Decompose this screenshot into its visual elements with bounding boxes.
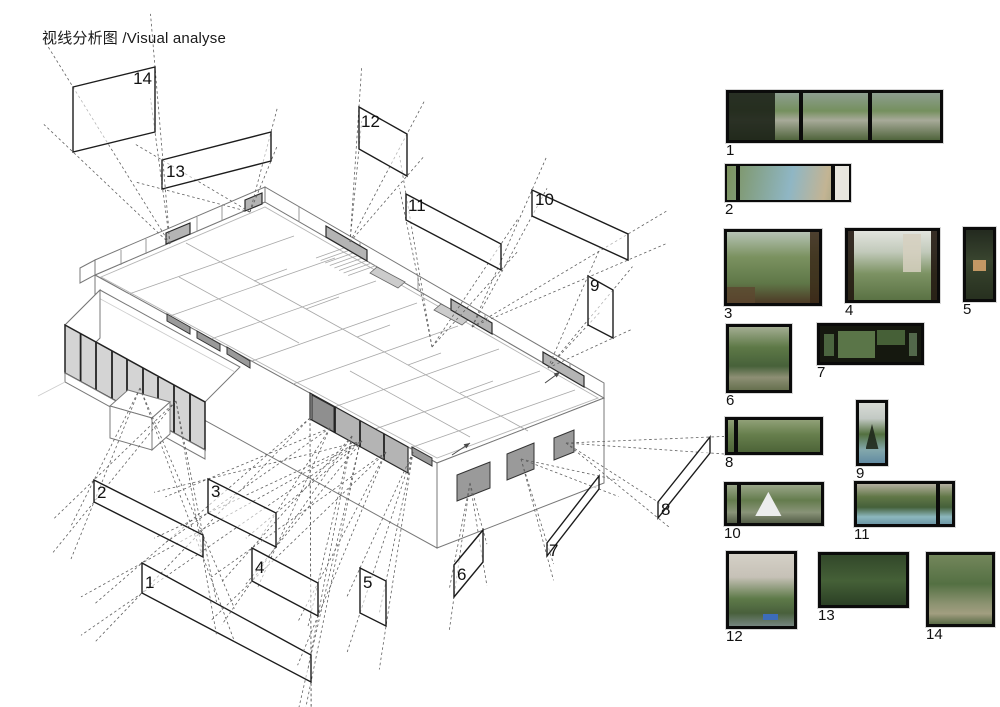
view-plane-10-number: 10 — [535, 190, 554, 209]
photo-2-label: 2 — [725, 202, 851, 219]
photo-5-image — [963, 227, 996, 302]
photo-11-label: 11 — [854, 527, 955, 544]
view-plane-13: 13 — [136, 108, 278, 212]
photo-10: 10 — [724, 482, 824, 543]
photo-3: 3 — [724, 229, 822, 323]
photo-7: 7 — [817, 323, 924, 382]
photo-11-image — [854, 481, 955, 527]
view-plane-9: 9 — [548, 248, 633, 368]
photo-11: 11 — [854, 481, 955, 544]
photo-7-detail — [838, 331, 874, 358]
photo-2-detail — [834, 166, 849, 200]
view-plane-2-frame — [94, 480, 203, 557]
photo-3-detail — [810, 232, 819, 303]
photo-14: 14 — [926, 552, 995, 644]
photo-12-image — [726, 551, 797, 629]
photo-10-label: 10 — [724, 526, 824, 543]
visual-analysis-diagram: 视线分析图 /Visual analyse — [0, 0, 1000, 707]
photo-7-detail — [909, 333, 917, 356]
photo-3-detail — [727, 287, 755, 303]
view-plane-10: 10 — [472, 156, 667, 327]
sight-line — [350, 67, 362, 243]
photo-6-image — [726, 324, 792, 393]
view-plane-8-number: 8 — [661, 500, 670, 519]
photo-8-image — [725, 417, 823, 455]
photo-7-detail — [877, 330, 905, 345]
photo-13-image — [818, 552, 909, 608]
photo-7-detail — [824, 334, 834, 356]
photo-3-label: 3 — [724, 306, 822, 323]
photo-5-label: 5 — [963, 302, 996, 319]
view-plane-1-number: 1 — [145, 573, 154, 592]
photo-1-label: 1 — [726, 143, 943, 160]
photo-9-image — [856, 400, 888, 466]
photo-1-image — [726, 90, 943, 143]
photo-8-mullion — [734, 420, 738, 452]
view-plane-12-number: 12 — [361, 112, 380, 131]
view-plane-13-number: 13 — [166, 162, 185, 181]
photo-6: 6 — [726, 324, 792, 410]
photo-9-detail — [866, 424, 879, 449]
photo-5-detail — [973, 260, 986, 271]
photo-1-detail — [729, 93, 775, 140]
sight-line — [136, 182, 250, 212]
photo-4-detail — [903, 234, 921, 272]
garden-cabin — [110, 390, 170, 450]
photo-8-label: 8 — [725, 455, 823, 472]
photo-2-image — [725, 164, 851, 202]
photo-14-label: 14 — [926, 627, 995, 644]
photo-7-label: 7 — [817, 365, 924, 382]
photo-13-label: 13 — [818, 608, 909, 625]
photo-1-mullion — [799, 93, 803, 140]
view-plane-14: 14 — [44, 14, 170, 244]
photo-8: 8 — [725, 417, 823, 472]
photo-9: 9 — [856, 400, 888, 483]
photo-2: 2 — [725, 164, 851, 219]
photo-10-detail — [755, 492, 781, 516]
view-plane-7-number: 7 — [549, 541, 558, 560]
photo-4-detail — [931, 231, 937, 300]
view-plane-9-number: 9 — [590, 276, 599, 295]
photo-11-mullion — [936, 484, 940, 524]
photo-1: 1 — [726, 90, 943, 160]
photo-3-image — [724, 229, 822, 306]
photo-10-image — [724, 482, 824, 526]
photo-12-detail — [763, 614, 779, 620]
view-plane-6-number: 6 — [457, 565, 466, 584]
photo-10-mullion — [737, 485, 741, 523]
photo-12: 12 — [726, 551, 797, 646]
photo-6-label: 6 — [726, 393, 792, 410]
sight-line — [71, 388, 140, 559]
view-plane-4-number: 4 — [255, 558, 264, 577]
view-plane-11-number: 11 — [408, 196, 426, 215]
view-plane-2-number: 2 — [97, 483, 106, 502]
photo-4: 4 — [845, 228, 940, 320]
photo-5: 5 — [963, 227, 996, 319]
photo-2-mullion — [736, 166, 740, 200]
photo-4-detail — [848, 231, 854, 300]
view-plane-3-number: 3 — [211, 482, 220, 501]
photo-1-mullion — [868, 93, 872, 140]
photo-7-image — [817, 323, 924, 365]
photo-4-label: 4 — [845, 303, 940, 320]
view-plane-14-number: 14 — [133, 69, 152, 88]
photo-14-image — [926, 552, 995, 627]
photo-4-image — [845, 228, 940, 303]
photo-2-mullion — [831, 166, 835, 200]
photo-13: 13 — [818, 552, 909, 625]
photo-12-label: 12 — [726, 629, 797, 646]
view-plane-5-number: 5 — [363, 573, 372, 592]
